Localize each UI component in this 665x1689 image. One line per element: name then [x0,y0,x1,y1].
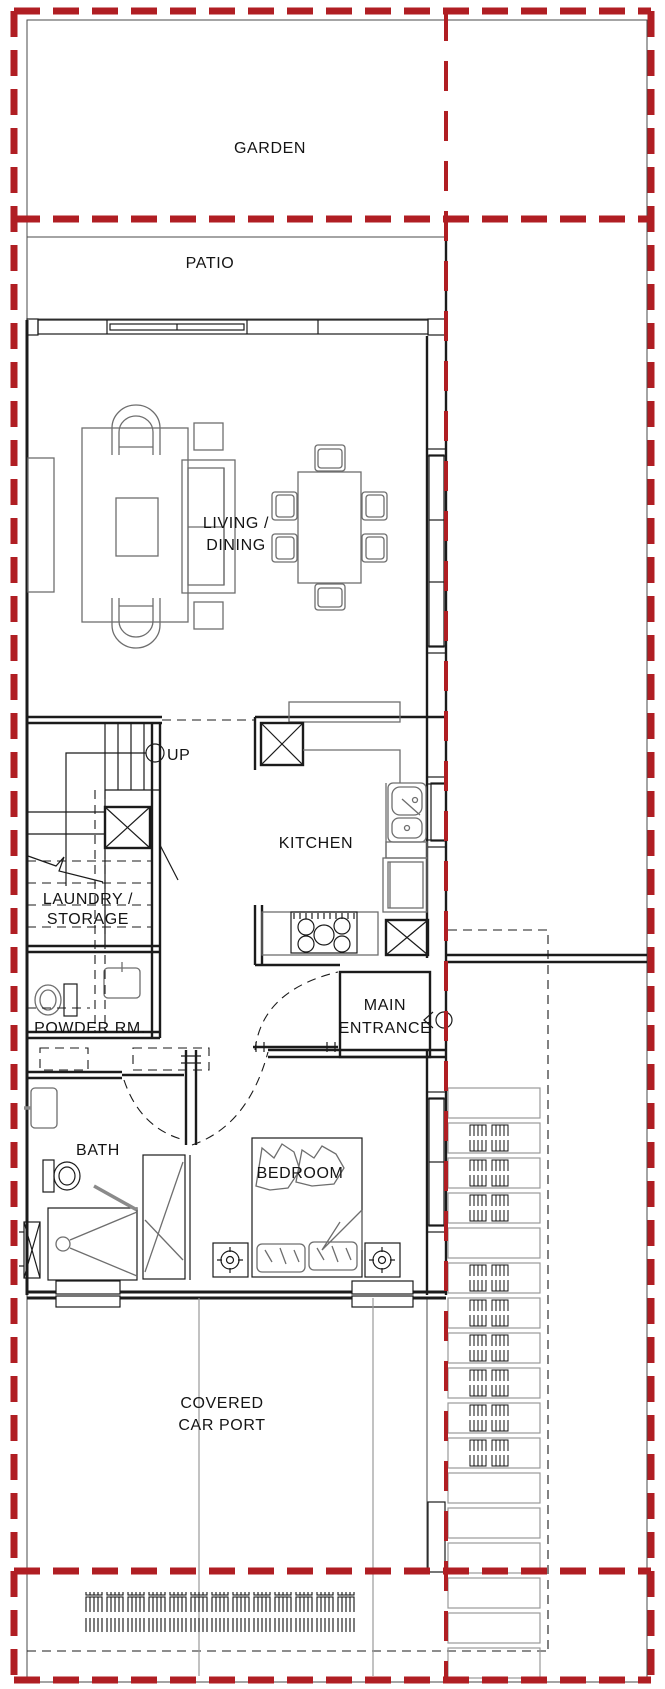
kitchen-x-box [386,920,428,955]
dining-set [272,445,387,610]
laundry-label-line2: STORAGE [47,911,129,928]
bath-fixtures [19,1088,185,1280]
side-table-bottom [194,602,223,629]
entrance-vestibule [340,972,430,1057]
bedroom-label: BEDROOM [257,1165,344,1182]
rug [82,428,188,622]
bath-label: BATH [76,1142,120,1159]
entrance-label-line1: MAIN [364,997,406,1014]
carport-pier [428,1502,445,1572]
living-north-window [27,319,446,335]
south-wall [27,1281,446,1307]
carport-label-line2: CAR PORT [178,1417,265,1434]
console-table [28,458,54,592]
entrance-label-line2: ENTRANCE [339,1020,432,1037]
fridge [383,858,427,912]
entrance-door-swing [255,972,338,1050]
dining-table [298,472,361,583]
bath-door-swing [124,1080,184,1140]
kitchen-label: KITCHEN [279,835,353,852]
shower [48,1186,137,1280]
main-entrance [253,972,452,1057]
powder-sink [104,968,140,998]
bath-toilet-tank [43,1160,54,1192]
up-label: UP [167,747,190,764]
bedroom-furniture [213,1138,400,1277]
cabinet [386,842,427,858]
exterior-walls [27,237,647,1307]
shower-door [94,1186,137,1210]
carport [85,1298,373,1676]
living-label-line2: DINING [206,537,266,554]
patio-label: PATIO [186,255,235,272]
bath-vanity [31,1088,57,1128]
floor-plan-drawing: GARDEN PATIO LIVING / DINING KITCHEN UP … [0,0,665,1689]
living-east-window [427,449,446,653]
side-table-top [194,423,223,450]
upper-cabinet [289,702,400,722]
bedroom-east-window [427,1092,446,1232]
kitchen-sink [388,783,426,842]
storage-closet-door [160,845,178,880]
laundry-label-line1: LAUNDRY / [43,891,133,908]
powder-toilet-tank [64,984,77,1016]
water-heater [19,1222,40,1278]
bath-toilet-bowl [54,1162,80,1190]
carport-label-line1: COVERED [180,1395,263,1412]
closet-hatched [143,1155,185,1279]
bedroom-door-swing [192,1052,268,1145]
kitchen-fixtures [261,702,428,955]
south-counter [262,912,378,955]
bath-window [56,1281,120,1294]
living-label-line1: LIVING / [203,515,269,532]
shaft-x-box [105,807,150,848]
powder-room-label: POWDER RM. [34,1020,146,1037]
garden-label: GARDEN [234,140,306,157]
coffee-table [116,498,158,556]
floor-plan-page: GARDEN PATIO LIVING / DINING KITCHEN UP … [0,0,665,1689]
side-walkway [448,1088,540,1678]
nightstand-right [365,1243,400,1277]
kitchen-window [427,777,446,847]
stove [291,912,357,953]
armchair-top [112,405,160,455]
driveway-grille [85,1592,358,1632]
bedroom-window [352,1281,413,1294]
up-marker-circle [146,744,164,762]
nightstand-left [213,1243,248,1277]
hood-x-box [261,723,303,765]
counter-edge [303,750,400,783]
armchair-bottom [112,598,160,648]
